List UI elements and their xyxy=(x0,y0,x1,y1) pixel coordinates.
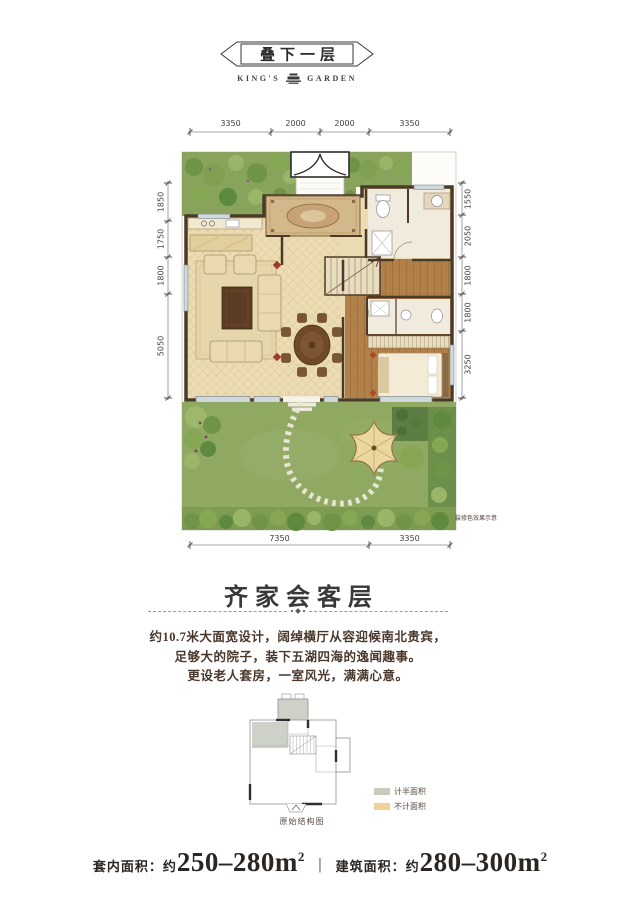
dim-label: 1550 xyxy=(464,189,473,209)
dim-label: 3350 xyxy=(220,119,240,128)
description-line: 更设老人套房，一室风光，满满心意。 xyxy=(0,667,596,687)
indoor-area-approx: 约 xyxy=(163,856,176,875)
floor-plan: 3350 2000 2000 3350 7350 3350 1850 1750 … xyxy=(140,105,500,560)
dimension-bottom: 7350 3350 xyxy=(188,534,453,549)
section-divider xyxy=(148,611,448,612)
build-area-label: 建筑面积： xyxy=(336,856,406,875)
diagram-legend: 计半面积 不计面积 xyxy=(374,786,426,816)
dimension-right: 1550 2050 1800 1800 3250 xyxy=(458,181,473,401)
schematic-caption: 原始结构图 xyxy=(232,816,372,827)
legend-item: 不计面积 xyxy=(374,801,426,812)
dim-label: 3350 xyxy=(399,534,419,543)
plan-note: 装修色效果示意 xyxy=(455,514,497,522)
build-area-approx: 约 xyxy=(406,856,419,875)
indoor-area-sup: 2 xyxy=(298,849,305,865)
dim-label: 1800 xyxy=(464,302,473,322)
dim-label: 7350 xyxy=(269,534,289,543)
legend-item: 计半面积 xyxy=(374,786,426,797)
entry-canopy-icon xyxy=(291,152,349,177)
description-line: 约10.7米大面宽设计，阔绰横厅从容迎候南北贵宾， xyxy=(0,628,596,648)
area-summary: 套内面积： 约 250–280m 2 | 建筑面积： 约 280–300m 2 xyxy=(0,847,640,878)
structure-diagram xyxy=(232,692,372,816)
area-divider: | xyxy=(318,856,321,874)
main-bathroom xyxy=(368,189,450,260)
page: 叠下一层 KING'S GARDEN xyxy=(0,0,640,920)
entry-foyer xyxy=(266,196,360,236)
dim-label: 1850 xyxy=(157,192,166,212)
dimension-left: 1850 1750 1800 5050 xyxy=(157,181,173,401)
bed xyxy=(378,353,448,397)
build-area-sup: 2 xyxy=(541,849,548,865)
brand-emblem-icon xyxy=(286,73,301,84)
indoor-area-label: 套内面积： xyxy=(93,856,163,875)
bottom-garden xyxy=(182,402,456,531)
dim-label: 3250 xyxy=(464,354,473,374)
dimension-top: 3350 2000 2000 3350 xyxy=(188,119,453,136)
brand-row: KING'S GARDEN xyxy=(192,73,402,84)
section-title: 齐家会客层 xyxy=(0,577,596,612)
dim-label: 2000 xyxy=(285,119,305,128)
brand-left: KING'S xyxy=(237,74,280,83)
legend-label: 不计面积 xyxy=(394,801,426,812)
coffee-table xyxy=(222,287,252,329)
description-line: 足够大的院子，装下五湖四海的逸闻趣事。 xyxy=(0,648,596,668)
living-room-sofa-set xyxy=(196,255,281,362)
staircase xyxy=(325,257,380,295)
build-area-value: 280–300m xyxy=(420,847,541,878)
section-description: 约10.7米大面宽设计，阔绰横厅从容迎候南北贵宾， 足够大的院子，装下五湖四海的… xyxy=(0,628,596,687)
header-badge: 叠下一层 xyxy=(217,40,377,68)
legend-swatch-uncounted-area xyxy=(374,803,390,810)
legend-label: 计半面积 xyxy=(394,786,426,797)
dim-label: 3350 xyxy=(399,119,419,128)
brand-right: GARDEN xyxy=(307,74,357,83)
floor-title: 叠下一层 xyxy=(260,46,340,64)
legend-swatch-half-area xyxy=(374,788,390,795)
dim-label: 2050 xyxy=(464,226,473,246)
dim-label: 5050 xyxy=(157,336,166,356)
dim-label: 1800 xyxy=(157,265,166,285)
dim-label: 2000 xyxy=(334,119,354,128)
dim-label: 1800 xyxy=(464,265,473,285)
dim-label: 1750 xyxy=(157,229,166,249)
entry-walkway xyxy=(291,152,349,196)
indoor-area-value: 250–280m xyxy=(177,847,298,878)
